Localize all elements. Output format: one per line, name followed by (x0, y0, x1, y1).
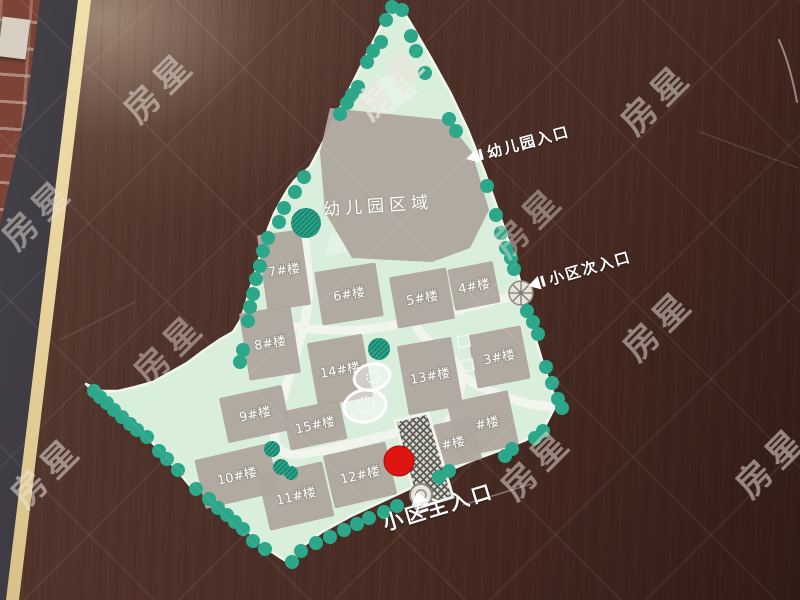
arrow-left-icon (464, 147, 484, 165)
tree-dot (531, 327, 545, 341)
tree-dot (442, 112, 456, 126)
tree-dot (277, 201, 291, 215)
tree-dot (294, 544, 308, 558)
tree-dot (309, 536, 323, 550)
tree-dot (291, 208, 321, 238)
tree-dot (539, 360, 553, 374)
tree-dot (368, 338, 390, 360)
tree-dot (555, 401, 569, 415)
location-marker (384, 446, 414, 476)
tree-dot (297, 170, 311, 184)
tree-dot (494, 226, 508, 240)
tree-dot (202, 492, 216, 506)
tree-dot (261, 231, 275, 245)
tree-dot (285, 555, 299, 569)
tree-dot (288, 185, 302, 199)
arrow-left-icon (526, 274, 546, 292)
building-3#楼: 3#楼 (467, 325, 530, 388)
tree-dot (253, 259, 267, 273)
tree-dot (272, 215, 286, 229)
tree-dot (171, 463, 185, 477)
tree-dot (323, 530, 337, 544)
tree-dot (258, 542, 272, 556)
tree-dot (189, 482, 203, 496)
community-site-plan-photo: 7#楼6#楼5#楼4#楼8#楼14#楼13#楼3#楼9#楼15#楼2#楼10#楼… (0, 0, 800, 600)
tree-dot (404, 29, 418, 43)
tree-dot (489, 208, 503, 222)
tree-dot (236, 343, 250, 357)
tree-dot (351, 80, 365, 94)
tree-dot (337, 523, 351, 537)
tree-dot (233, 355, 247, 369)
tree-dot (409, 44, 423, 58)
tree-dot (284, 466, 298, 480)
tree-dot (432, 470, 446, 484)
tree-dot (528, 431, 542, 445)
tree-dot (246, 534, 260, 548)
tree-dot (249, 272, 263, 286)
tree-dot (256, 244, 270, 258)
tree-dot (418, 66, 432, 80)
tree-dot (449, 124, 463, 138)
tree-dot (87, 384, 101, 398)
tree-dot (264, 441, 280, 457)
tree-dot (498, 449, 512, 463)
tree-dot (362, 511, 376, 525)
tree-dot (526, 315, 540, 329)
tree-dot (152, 444, 166, 458)
building-5#楼: 5#楼 (389, 267, 455, 328)
tree-dot (545, 376, 559, 390)
tree-dot (246, 287, 260, 301)
tree-dot (480, 179, 494, 193)
tree-dot (379, 13, 393, 27)
tree-dot (243, 300, 257, 314)
tree-dot (374, 35, 388, 49)
building-6#楼: 6#楼 (314, 262, 384, 325)
tree-dot (350, 517, 364, 531)
tree-dot (507, 262, 521, 276)
tree-dot (395, 3, 409, 17)
tree-dot (241, 314, 255, 328)
building-4#楼: 4#楼 (447, 261, 500, 311)
